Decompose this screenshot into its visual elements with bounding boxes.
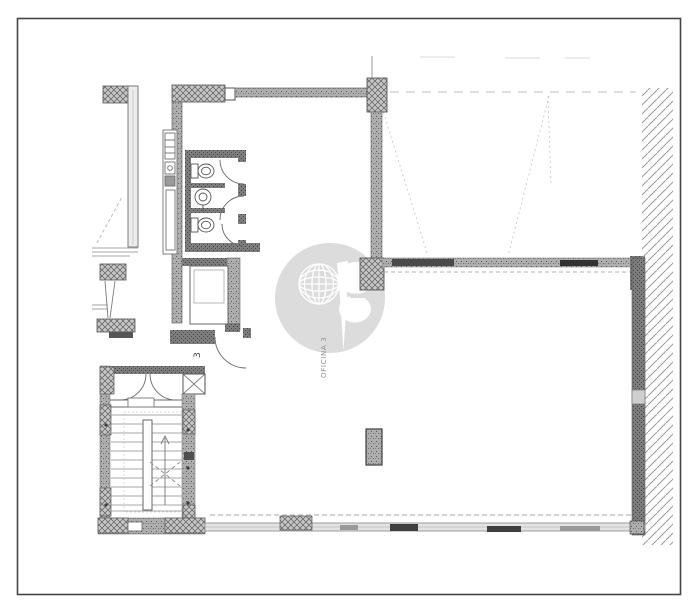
sketch-construction-lines [379, 96, 551, 256]
door-swing-arc [215, 337, 246, 368]
left-neighbor-walls [92, 86, 138, 338]
stairwell [98, 366, 205, 534]
door-number-label: 3 [193, 352, 203, 358]
door-swing-dashed [97, 197, 122, 243]
toilet-icon [191, 218, 214, 232]
column-top [367, 78, 387, 112]
stair-newel-wall [143, 420, 152, 510]
tapered-wall-segment [105, 281, 115, 318]
sink-icon [195, 189, 211, 211]
stair-landing-doors [110, 374, 182, 407]
bathroom [185, 150, 260, 252]
scan-artifact-marks [420, 57, 590, 58]
column-mid [360, 258, 384, 290]
right-party-wall [632, 88, 673, 545]
elevator-shaft [182, 258, 240, 332]
floor-plan-drawing: 3 [0, 0, 689, 611]
party-wall-hatch [642, 88, 673, 545]
room-name-label: OFICINA 3 [320, 336, 328, 378]
bathroom-door-arcs [220, 160, 244, 246]
bottom-window-wall [205, 515, 645, 534]
toilet-icon [191, 164, 214, 178]
pillar-column [366, 429, 382, 465]
entrance-door: 3 [170, 328, 251, 368]
floor-plan-canvas: 3 [0, 0, 689, 611]
service-counter-strip [163, 130, 177, 254]
globe-icon [299, 264, 339, 304]
top-right-room [360, 92, 645, 290]
stairs-up-arrow-icon [161, 436, 169, 505]
